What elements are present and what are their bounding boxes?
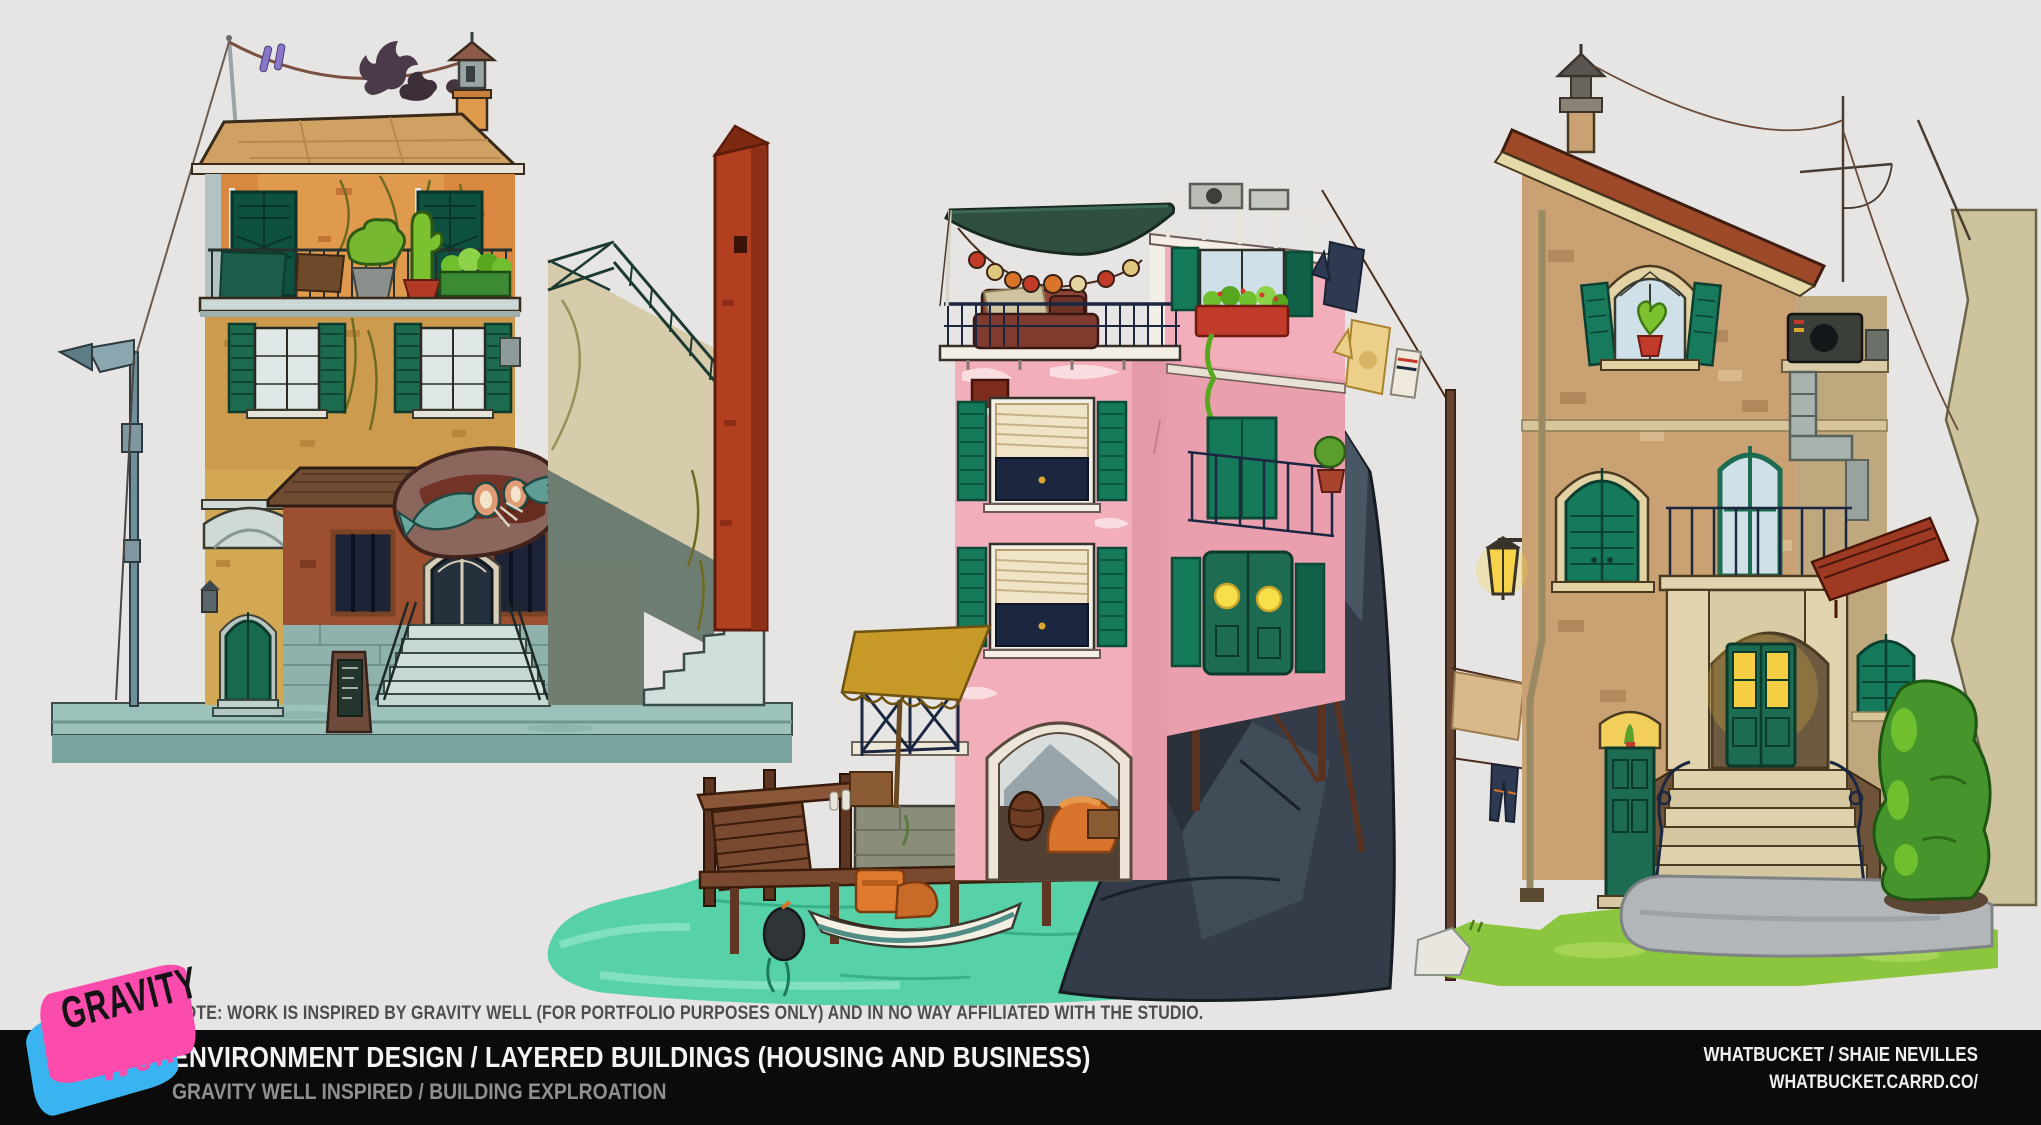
couch xyxy=(974,286,1098,348)
clothespin xyxy=(259,45,272,72)
credits-block: WHATBUCKET / SHAIE NEVILLES WHATBUCKET.C… xyxy=(1655,1044,1978,1094)
red-tower xyxy=(715,126,767,630)
portfolio-sheet: NOTE: WORK IS INSPIRED BY GRAVITY WELL (… xyxy=(0,0,2041,1125)
sheet-title: ENVIRONMENT DESIGN / LAYERED BUILDINGS (… xyxy=(172,1042,1091,1075)
lit-green-door xyxy=(1172,552,1324,674)
wall-lamp xyxy=(1476,536,1528,600)
website-credit: WHATBUCKET.CARRD.CO/ xyxy=(1703,1072,1978,1094)
street-lamp xyxy=(60,340,142,706)
left-building-illustration xyxy=(52,32,792,763)
quay-arch xyxy=(987,723,1131,880)
artist-credit: WHATBUCKET / SHAIE NEVILLES xyxy=(1703,1044,1978,1067)
towel xyxy=(296,254,344,292)
right-building-illustration xyxy=(1415,44,2036,986)
entrance-portico xyxy=(1660,576,1856,770)
pants xyxy=(1490,764,1518,822)
chalkboard-sign xyxy=(327,652,371,732)
blinds-window xyxy=(958,398,1126,512)
open-window xyxy=(229,324,345,418)
tavern-middle-floor xyxy=(205,317,520,470)
artwork-canvas xyxy=(0,0,2041,1035)
sheet-subtitle: GRAVITY WELL INSPIRED / BUILDING EXPLROA… xyxy=(172,1079,666,1105)
street-pavement xyxy=(52,703,792,763)
roof-terrace xyxy=(940,204,1180,348)
bush xyxy=(1874,681,1990,914)
disclaimer-note: NOTE: WORK IS INSPIRED BY GRAVITY WELL (… xyxy=(172,1003,1203,1025)
rooftop-ac-units xyxy=(1190,184,1288,209)
gravity-well-logo: GRAVITY Well xyxy=(26,972,206,1124)
open-window xyxy=(395,324,511,418)
restaurant-window xyxy=(333,532,393,614)
towel xyxy=(220,252,286,300)
